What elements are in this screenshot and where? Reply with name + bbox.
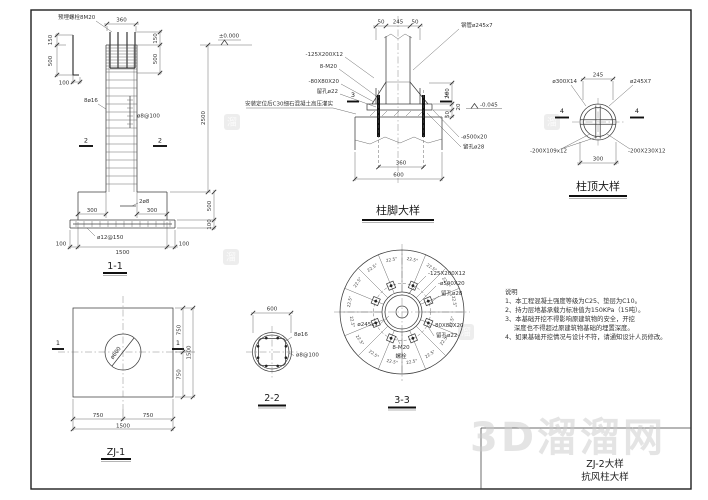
top-plate-left-label: -200X109x12	[530, 149, 567, 155]
top-linework	[572, 98, 624, 146]
sec33-bolts-label: 8-M20	[392, 345, 410, 351]
dim-100-slab-left: 100	[56, 242, 67, 248]
base-dim-360: 360	[396, 161, 407, 167]
base-washer-label: -80X80X20	[308, 79, 339, 85]
sec33-plate500-label: -ø500X20	[438, 281, 465, 287]
zj1-dim-750-rt: 750	[177, 324, 183, 335]
footing-linework	[70, 192, 175, 228]
base-tube-label: 钢管ø245x7	[461, 21, 493, 29]
watermark-badge-glyph: 溜	[226, 251, 236, 264]
zj1-dim-1500-r: 1500	[187, 345, 193, 359]
sec22-stirrup-label: ø8@100	[296, 353, 319, 359]
notes-line-2: 2、持力层地基承载力标准值为150KPa（15吨）。	[505, 305, 644, 314]
sec22-linework	[246, 326, 298, 378]
watermark-site-text: 3D溜溜网	[470, 415, 666, 461]
sec33-hole22-label: 留孔ø22	[436, 331, 457, 339]
angle-label: 22.5°	[424, 349, 436, 360]
drawing-sheet: 溜 溜 溜 溜 150 500 100 360 预埋螺栓8M20 8ø16 ø8…	[0, 0, 708, 500]
notes-block: 说明 1、本工程混凝土强度等级为C25、垫层为C10。 2、持力层地基承载力标准…	[505, 287, 666, 341]
zj1-dim-1500-b: 1500	[116, 424, 130, 430]
base-dim-245: 245	[393, 20, 404, 26]
zj1-circle-label: ø600	[110, 346, 123, 361]
angle-label: 22.5°	[352, 276, 363, 288]
view-zj1-title: ZJ-1	[107, 447, 125, 458]
zj1-linework	[58, 296, 190, 409]
dim-300-right: 300	[147, 208, 158, 214]
title-block-drawing-name: ZJ-2大样	[586, 458, 623, 470]
section-3-mark-left: 3	[351, 91, 355, 99]
dim-100-footing: 100	[207, 219, 213, 230]
base-hole28-label: 留孔ø28	[463, 143, 485, 151]
view-top-title: 柱顶大样	[576, 179, 620, 193]
anchor-bar-detail	[55, 33, 82, 84]
base-dim-200: 200	[445, 88, 451, 99]
view-column-base: 50 245 50 -125X200X12 8-M20 -80X80X20 留孔…	[245, 16, 502, 223]
angle-label: 22.5°	[366, 262, 378, 273]
angle-label: 22.5°	[349, 316, 356, 328]
sec33-linework	[334, 244, 470, 381]
sec22-rebar-label: 8ø16	[294, 332, 308, 338]
column-linework	[106, 32, 137, 192]
zj1-dim-750-rb: 750	[177, 369, 183, 380]
dim-360-top: 360	[116, 18, 127, 24]
dim-100-hook: 100	[59, 81, 70, 87]
base-dim-600: 600	[393, 173, 404, 179]
top-dim-300: 300	[593, 157, 604, 163]
sec33-washer-label: -80X80X20	[433, 323, 464, 329]
angle-label: 22.5°	[406, 358, 418, 365]
base-bolts-label: 8-M20	[320, 64, 338, 70]
notes-heading: 说明	[505, 287, 518, 296]
base-dim-50-r: 50	[412, 20, 419, 26]
view-2-2: 600 8ø16 ø8@100 2-2	[246, 307, 319, 409]
top-tube-label: ø245X7	[630, 79, 652, 85]
base-plate500-label: -ø500x20	[461, 135, 488, 141]
angle-label: 22.5°	[386, 256, 398, 263]
dim-150-right: 150	[153, 33, 159, 44]
stirrup-label: ø8@100	[137, 114, 160, 120]
embed-bolt-label: 预埋螺栓8M20	[58, 13, 96, 21]
section-1-mark-right: 1	[176, 339, 180, 347]
dim-500-footing: 500	[207, 200, 213, 211]
drawing-canvas: 溜 溜 溜 溜 150 500 100 360 预埋螺栓8M20 8ø16 ø8…	[0, 0, 708, 500]
view-2-2-title: 2-2	[264, 393, 280, 404]
angle-label: 22.5°	[355, 334, 366, 346]
level-zero-symbol	[200, 40, 252, 45]
notes-line-3b: 深度也不得超过原建筑物基础的埋置深度。	[514, 323, 634, 332]
notes-line-4: 4、如果基础开挖情况与设计不符，请通知设计人员修改。	[505, 332, 666, 341]
section-2-mark-right: 2	[158, 137, 162, 145]
footing-tie-label: 2ø8	[139, 199, 150, 205]
watermark-badge-glyph: 溜	[227, 116, 237, 129]
section-4-mark-left: 4	[560, 107, 564, 115]
view-base-title: 柱脚大样	[376, 203, 420, 217]
sec33-tube-label: ø245x7	[357, 322, 378, 328]
notes-line-1: 1、本工程混凝土强度等级为C25、垫层为C10。	[505, 296, 641, 305]
view-zj1: ø600 1 1 750 750 1500 750 750 1500 ZJ-1	[52, 296, 195, 462]
base-plate1-label: -125X200X12	[305, 52, 343, 58]
sec33-plate1-label: -125X200X12	[428, 271, 466, 277]
base-level-label: -0.045	[480, 103, 498, 109]
base-dim-50-l: 50	[378, 20, 385, 26]
view-1-1: 150 500 100 360 预埋螺栓8M20 8ø16 ø8@100 150…	[48, 13, 252, 276]
top-plate-right-label: -200X230X12	[628, 149, 666, 155]
sec33-hole28-label: 留孔ø28	[441, 289, 463, 297]
dim-100-slab-right: 100	[179, 242, 190, 248]
base-dim-50v: 50	[445, 111, 451, 118]
zj1-dim-750-bl: 750	[93, 413, 104, 419]
dim-2500: 2500	[201, 111, 207, 125]
dim-300-left: 300	[87, 208, 98, 214]
base-grout-label: 安装定位后C30细石混凝土高压灌实	[245, 100, 333, 108]
level-zero-label: ±0.000	[219, 34, 240, 40]
sec22-dim-600: 600	[267, 307, 278, 313]
base-dim-20: 20	[456, 103, 462, 110]
title-block: ZJ-2大样 抗风柱大样	[581, 458, 629, 483]
base-linework	[355, 16, 442, 183]
view-3-3-title: 3-3	[394, 395, 410, 406]
angle-label: 22.5°	[368, 349, 380, 360]
top-dim-245: 245	[593, 73, 604, 79]
dim-500-left: 500	[48, 55, 54, 66]
view-3-3: 22.5° 22.5° 22.5° 22.5° 22.5° 22.5° 22.5…	[334, 244, 470, 410]
dim-500-right: 500	[153, 53, 159, 64]
section-4-mark-right: 4	[635, 107, 639, 115]
sec33-bolt-word: 螺栓	[395, 352, 407, 360]
dim-150-left: 150	[48, 34, 54, 45]
section-1-mark-left: 1	[56, 339, 60, 347]
angle-label: 22.5°	[346, 296, 353, 308]
view-1-1-title: 1-1	[107, 261, 123, 272]
view-column-top: 245 300 ø300X14 ø245X7 -200X109x12 -200X…	[530, 73, 666, 199]
title-block-drawing-subname: 抗风柱大样	[581, 471, 629, 483]
angle-label: 22.5°	[451, 296, 458, 308]
base-hole22-label: 留孔ø22	[317, 87, 338, 95]
angle-label: 22.5°	[406, 256, 418, 263]
top-ring-label: ø300X14	[552, 79, 577, 85]
zj1-dim-750-br: 750	[143, 413, 154, 419]
mat-rebar-label: ø12@150	[97, 235, 124, 241]
notes-line-3: 3、本基础开挖不得影响原建筑物的安全，开挖	[505, 314, 635, 323]
main-rebar-label: 8ø16	[84, 98, 98, 104]
section-2-mark-left: 2	[84, 137, 88, 145]
dim-1500-slab: 1500	[116, 250, 130, 256]
